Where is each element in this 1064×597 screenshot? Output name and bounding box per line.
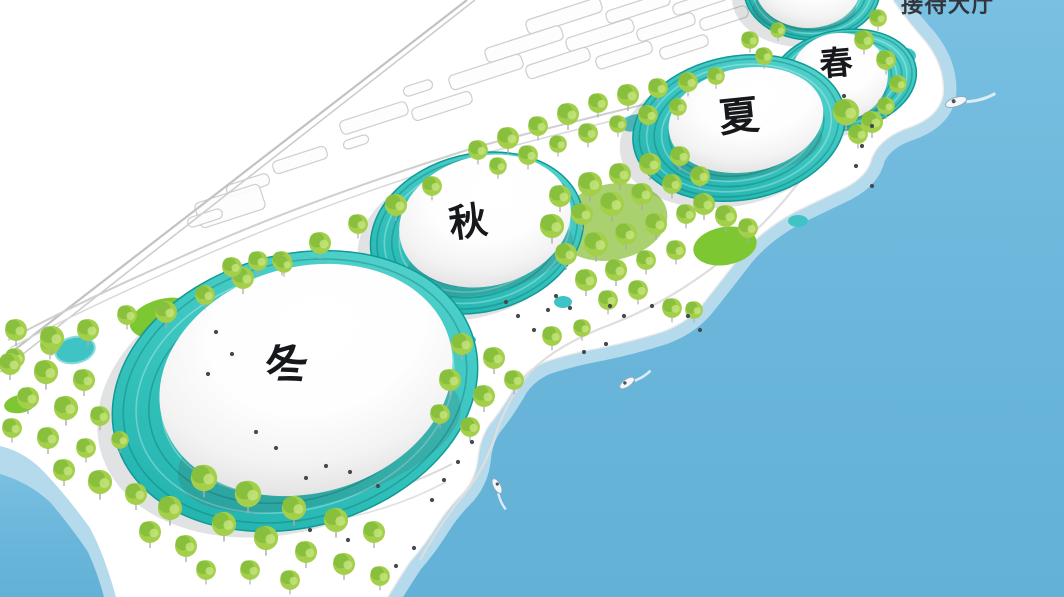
person-figure: [516, 314, 520, 318]
person-figure: [308, 528, 312, 532]
person-figure: [568, 306, 572, 310]
person-figure: [650, 304, 654, 308]
person-figure: [470, 440, 474, 444]
person-figure: [324, 464, 328, 468]
person-figure: [230, 352, 234, 356]
pond: [788, 215, 808, 227]
dome-label-summer: 夏: [717, 95, 761, 139]
person-figure: [274, 446, 278, 450]
person-figure: [604, 342, 608, 346]
person-figure: [546, 308, 550, 312]
person-figure: [870, 124, 874, 128]
person-figure: [860, 144, 864, 148]
person-figure: [554, 294, 558, 298]
reception-hall-label: 接待大厅: [901, 0, 995, 18]
person-figure: [686, 314, 690, 318]
person-figure: [376, 484, 380, 488]
person-figure: [870, 184, 874, 188]
person-figure: [504, 300, 508, 304]
person-figure: [348, 470, 352, 474]
person-figure: [532, 328, 536, 332]
person-figure: [854, 164, 858, 168]
person-figure: [412, 546, 416, 550]
person-figure: [214, 330, 218, 334]
person-figure: [206, 372, 210, 376]
person-figure: [430, 498, 434, 502]
person-figure: [456, 460, 460, 464]
person-figure: [394, 564, 398, 568]
person-figure: [304, 476, 308, 480]
person-figure: [346, 538, 350, 542]
person-figure: [622, 314, 626, 318]
rendering-canvas: 冬 秋 夏 春 接待大厅: [0, 0, 1064, 597]
person-figure: [254, 430, 258, 434]
person-figure: [442, 478, 446, 482]
dome-label-spring: 春: [818, 45, 854, 81]
person-figure: [608, 304, 612, 308]
site-plan-rendering: [0, 0, 1064, 597]
person-figure: [842, 94, 846, 98]
dome-label-autumn: 秋: [447, 201, 490, 244]
person-figure: [582, 350, 586, 354]
person-figure: [698, 328, 702, 332]
